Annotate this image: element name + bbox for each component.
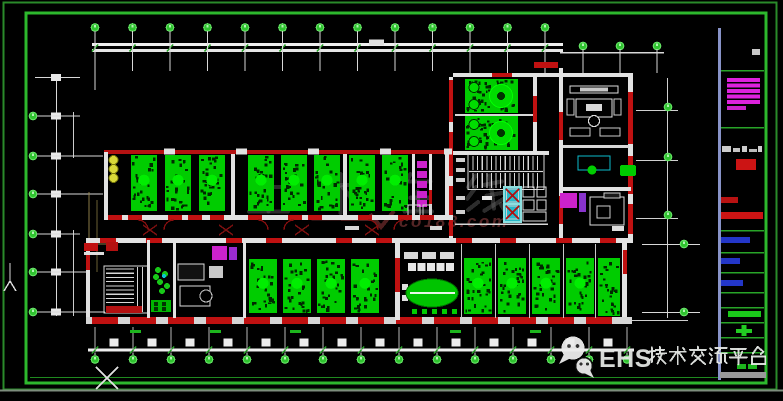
svg-text:EHS: EHS [599, 345, 652, 373]
svg-text:co188.com: co188.com [399, 212, 509, 231]
